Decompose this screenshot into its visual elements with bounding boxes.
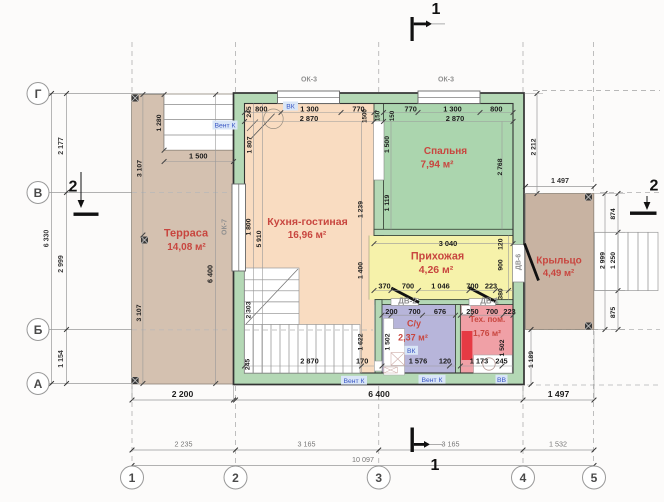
svg-text:1 497: 1 497 <box>551 176 569 185</box>
svg-text:2 999: 2 999 <box>600 252 607 269</box>
svg-text:Тех. пом.: Тех. пом. <box>470 315 505 324</box>
svg-text:1500: 1500 <box>362 109 369 123</box>
svg-text:4: 4 <box>520 471 527 485</box>
svg-text:Кухня-гостиная: Кухня-гостиная <box>267 216 347 228</box>
svg-text:1 807: 1 807 <box>247 136 254 153</box>
svg-text:2 212: 2 212 <box>531 138 538 155</box>
svg-text:14,08 м²: 14,08 м² <box>167 242 206 253</box>
svg-text:700: 700 <box>408 307 420 316</box>
svg-text:1: 1 <box>431 457 440 474</box>
svg-text:2 870: 2 870 <box>300 114 319 123</box>
svg-text:1 500: 1 500 <box>384 136 391 153</box>
svg-text:245: 245 <box>246 106 253 118</box>
svg-text:1 502: 1 502 <box>385 333 392 350</box>
svg-text:1 500: 1 500 <box>189 152 208 161</box>
svg-text:1 250: 1 250 <box>610 252 617 269</box>
svg-text:120: 120 <box>498 238 505 250</box>
svg-text:3 107: 3 107 <box>136 304 143 321</box>
svg-text:Прихожая: Прихожая <box>411 251 464 263</box>
svg-text:1 280: 1 280 <box>156 114 163 131</box>
svg-text:1 497: 1 497 <box>548 389 570 399</box>
svg-text:2,37 м²: 2,37 м² <box>398 333 428 343</box>
svg-text:16,96 м²: 16,96 м² <box>288 230 327 241</box>
svg-text:Вент К: Вент К <box>214 123 235 130</box>
svg-text:2 768: 2 768 <box>497 158 504 175</box>
svg-text:875: 875 <box>610 307 617 319</box>
svg-text:ДВ-1: ДВ-1 <box>480 297 499 306</box>
svg-text:ОК-7: ОК-7 <box>222 219 229 235</box>
svg-text:10 097: 10 097 <box>352 455 374 464</box>
svg-text:770: 770 <box>405 105 417 114</box>
svg-text:ВК: ВК <box>407 348 416 355</box>
svg-text:2: 2 <box>69 179 78 196</box>
svg-text:С/у: С/у <box>407 319 421 329</box>
svg-text:800: 800 <box>490 105 502 114</box>
svg-text:150: 150 <box>389 110 396 121</box>
svg-text:4,26 м²: 4,26 м² <box>419 264 454 276</box>
svg-text:Вент К: Вент К <box>343 378 364 385</box>
svg-text:1: 1 <box>432 1 441 18</box>
svg-text:Г: Г <box>35 87 42 101</box>
svg-text:900: 900 <box>498 259 505 271</box>
svg-text:2 870: 2 870 <box>300 356 319 365</box>
svg-text:1 532: 1 532 <box>549 440 567 449</box>
svg-text:2: 2 <box>232 471 239 485</box>
svg-text:3 165: 3 165 <box>442 440 460 449</box>
svg-text:2 303: 2 303 <box>245 301 252 318</box>
svg-text:7,94 м²: 7,94 м² <box>421 160 455 171</box>
svg-text:1 502: 1 502 <box>499 339 506 356</box>
svg-text:Вент К: Вент К <box>421 377 442 384</box>
svg-text:1 300: 1 300 <box>443 105 462 114</box>
svg-text:А: А <box>34 377 43 391</box>
svg-text:1 173: 1 173 <box>470 356 489 365</box>
svg-text:5: 5 <box>591 471 598 485</box>
svg-text:245: 245 <box>495 356 507 365</box>
svg-text:1 189: 1 189 <box>528 351 535 368</box>
svg-text:ОК-3: ОК-3 <box>301 77 317 84</box>
svg-text:ВК: ВК <box>286 104 295 111</box>
svg-text:ВВ: ВВ <box>497 377 507 384</box>
svg-text:Терраса: Терраса <box>164 228 209 240</box>
svg-text:370: 370 <box>378 281 390 290</box>
svg-text:5 910: 5 910 <box>256 230 263 247</box>
svg-text:2 999: 2 999 <box>58 255 65 273</box>
svg-text:676: 676 <box>434 307 446 316</box>
svg-text:1 800: 1 800 <box>246 218 253 235</box>
svg-text:1 154: 1 154 <box>58 350 65 368</box>
svg-text:1: 1 <box>129 471 136 485</box>
svg-text:ДВ-6: ДВ-6 <box>516 254 523 270</box>
svg-text:170: 170 <box>356 356 368 365</box>
svg-text:1 239: 1 239 <box>358 201 365 218</box>
svg-text:2 177: 2 177 <box>58 137 65 155</box>
svg-text:2 200: 2 200 <box>172 389 194 399</box>
svg-text:2 870: 2 870 <box>446 114 465 123</box>
svg-text:3 165: 3 165 <box>298 440 316 449</box>
svg-text:120: 120 <box>439 356 451 365</box>
svg-text:223: 223 <box>485 281 497 290</box>
svg-text:1 046: 1 046 <box>431 281 450 290</box>
svg-text:2: 2 <box>650 178 659 195</box>
svg-text:2 235: 2 235 <box>175 440 193 449</box>
svg-text:ОК-3: ОК-3 <box>438 77 454 84</box>
svg-text:3 107: 3 107 <box>137 160 144 177</box>
svg-text:1 576: 1 576 <box>409 356 428 365</box>
svg-text:6 400: 6 400 <box>368 389 390 399</box>
svg-text:6 400: 6 400 <box>206 265 215 283</box>
svg-text:874: 874 <box>610 208 617 220</box>
svg-text:Крыльцо: Крыльцо <box>536 256 582 267</box>
svg-text:4,49 м²: 4,49 м² <box>543 268 574 279</box>
svg-text:3: 3 <box>375 471 382 485</box>
svg-text:В: В <box>34 186 43 200</box>
svg-text:1 300: 1 300 <box>300 105 319 114</box>
svg-text:1 400: 1 400 <box>358 262 365 279</box>
svg-text:1 119: 1 119 <box>384 194 391 211</box>
svg-text:ДВ-2: ДВ-2 <box>398 297 417 306</box>
svg-text:1,76 м²: 1,76 м² <box>473 328 501 338</box>
svg-text:800: 800 <box>255 105 267 114</box>
svg-text:1 622: 1 622 <box>358 333 365 350</box>
svg-text:Спальня: Спальня <box>424 146 467 157</box>
svg-text:3 040: 3 040 <box>439 239 458 248</box>
svg-text:700: 700 <box>402 281 414 290</box>
svg-text:6 330: 6 330 <box>44 230 51 248</box>
svg-text:Б: Б <box>34 323 43 337</box>
svg-text:700: 700 <box>466 281 478 290</box>
